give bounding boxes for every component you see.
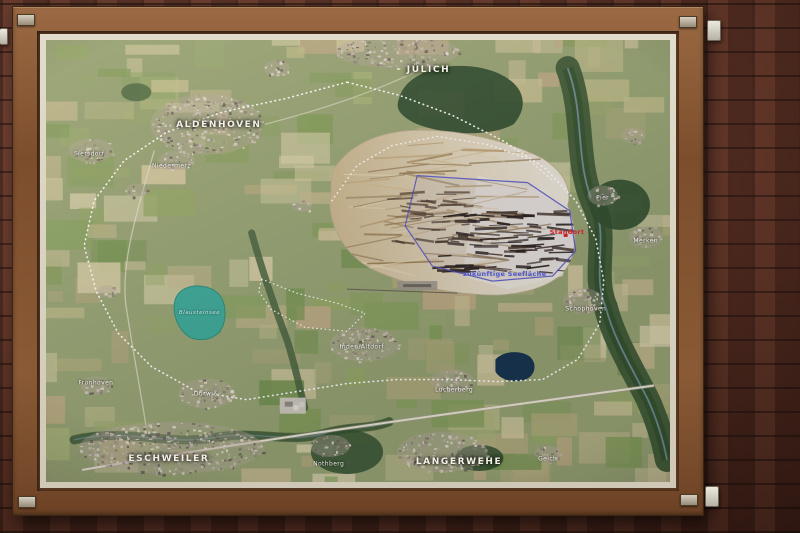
map-frame: JÜLICHALDENHOVENESCHWEILERLANGERWEHESier… (12, 6, 704, 516)
corner-plate (17, 14, 35, 26)
wall-mount-bracket (707, 20, 721, 41)
lucherberger-see-lake (495, 352, 534, 381)
frame-inner-lip: JÜLICHALDENHOVENESCHWEILERLANGERWEHESier… (37, 31, 679, 491)
satellite-imagery (46, 40, 670, 482)
aerial-map-photo: JÜLICHALDENHOVENESCHWEILERLANGERWEHESier… (46, 40, 670, 482)
corner-plate (679, 16, 697, 28)
white-mat-border: JÜLICHALDENHOVENESCHWEILERLANGERWEHESier… (40, 34, 676, 488)
corner-plate (18, 496, 36, 508)
standort-marker (564, 234, 568, 237)
corner-plate (680, 494, 698, 506)
wall-mount-bracket (705, 486, 719, 507)
power-plant-site (280, 398, 306, 414)
wall-mount-bracket (0, 28, 8, 45)
